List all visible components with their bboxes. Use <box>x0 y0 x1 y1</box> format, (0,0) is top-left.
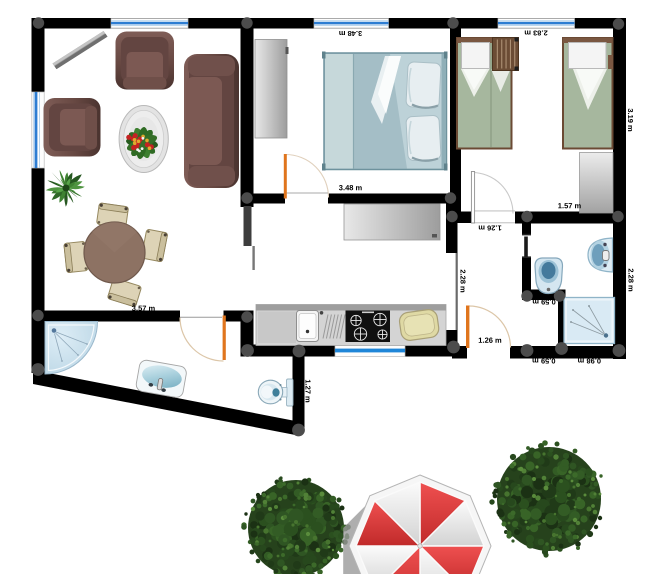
svg-text:0.59 m: 0.59 m <box>532 298 556 307</box>
svg-text:0.98 m: 0.98 m <box>577 357 601 366</box>
svg-text:2.83 m: 2.83 m <box>524 29 548 38</box>
svg-text:1.57 m: 1.57 m <box>558 201 582 210</box>
svg-text:1.27 m: 1.27 m <box>304 379 313 403</box>
svg-text:2.28 m: 2.28 m <box>459 269 468 293</box>
svg-text:0.59 m: 0.59 m <box>532 357 556 366</box>
svg-text:2.28 m: 2.28 m <box>627 268 636 292</box>
svg-text:3.57 m: 3.57 m <box>132 304 156 313</box>
svg-text:3.48 m: 3.48 m <box>339 183 363 192</box>
svg-text:3.19 m: 3.19 m <box>626 108 635 132</box>
svg-text:1.26 m: 1.26 m <box>478 224 502 233</box>
svg-text:3.48 m: 3.48 m <box>338 29 362 38</box>
svg-text:1.26 m: 1.26 m <box>478 336 502 345</box>
